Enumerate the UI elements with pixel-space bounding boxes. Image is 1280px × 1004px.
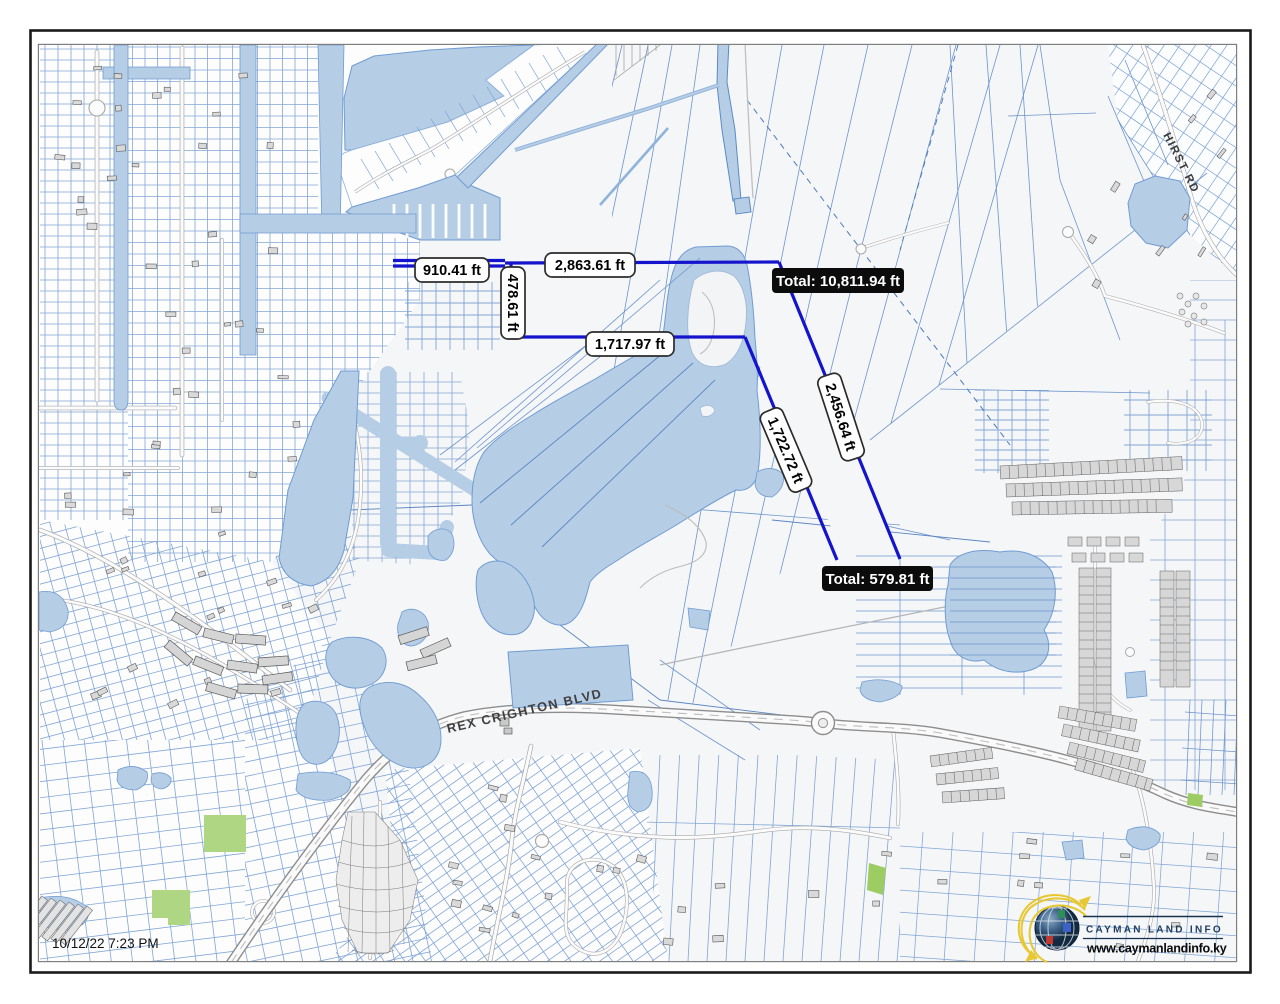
svg-text:CAYMAN LAND INFO: CAYMAN LAND INFO — [1086, 925, 1223, 936]
svg-text:1,717.97 ft: 1,717.97 ft — [595, 337, 665, 353]
svg-text:Total: 10,811.94 ft: Total: 10,811.94 ft — [776, 273, 900, 290]
svg-text:Total: 579.81 ft: Total: 579.81 ft — [826, 571, 930, 588]
svg-text:910.41 ft: 910.41 ft — [423, 263, 481, 279]
svg-text:10/12/22 7:23 PM: 10/12/22 7:23 PM — [52, 936, 159, 951]
svg-text:478.61 ft: 478.61 ft — [504, 274, 520, 332]
svg-text:2,863.61 ft: 2,863.61 ft — [555, 258, 625, 274]
svg-text:www.caymanlandinfo.ky: www.caymanlandinfo.ky — [1086, 942, 1227, 956]
